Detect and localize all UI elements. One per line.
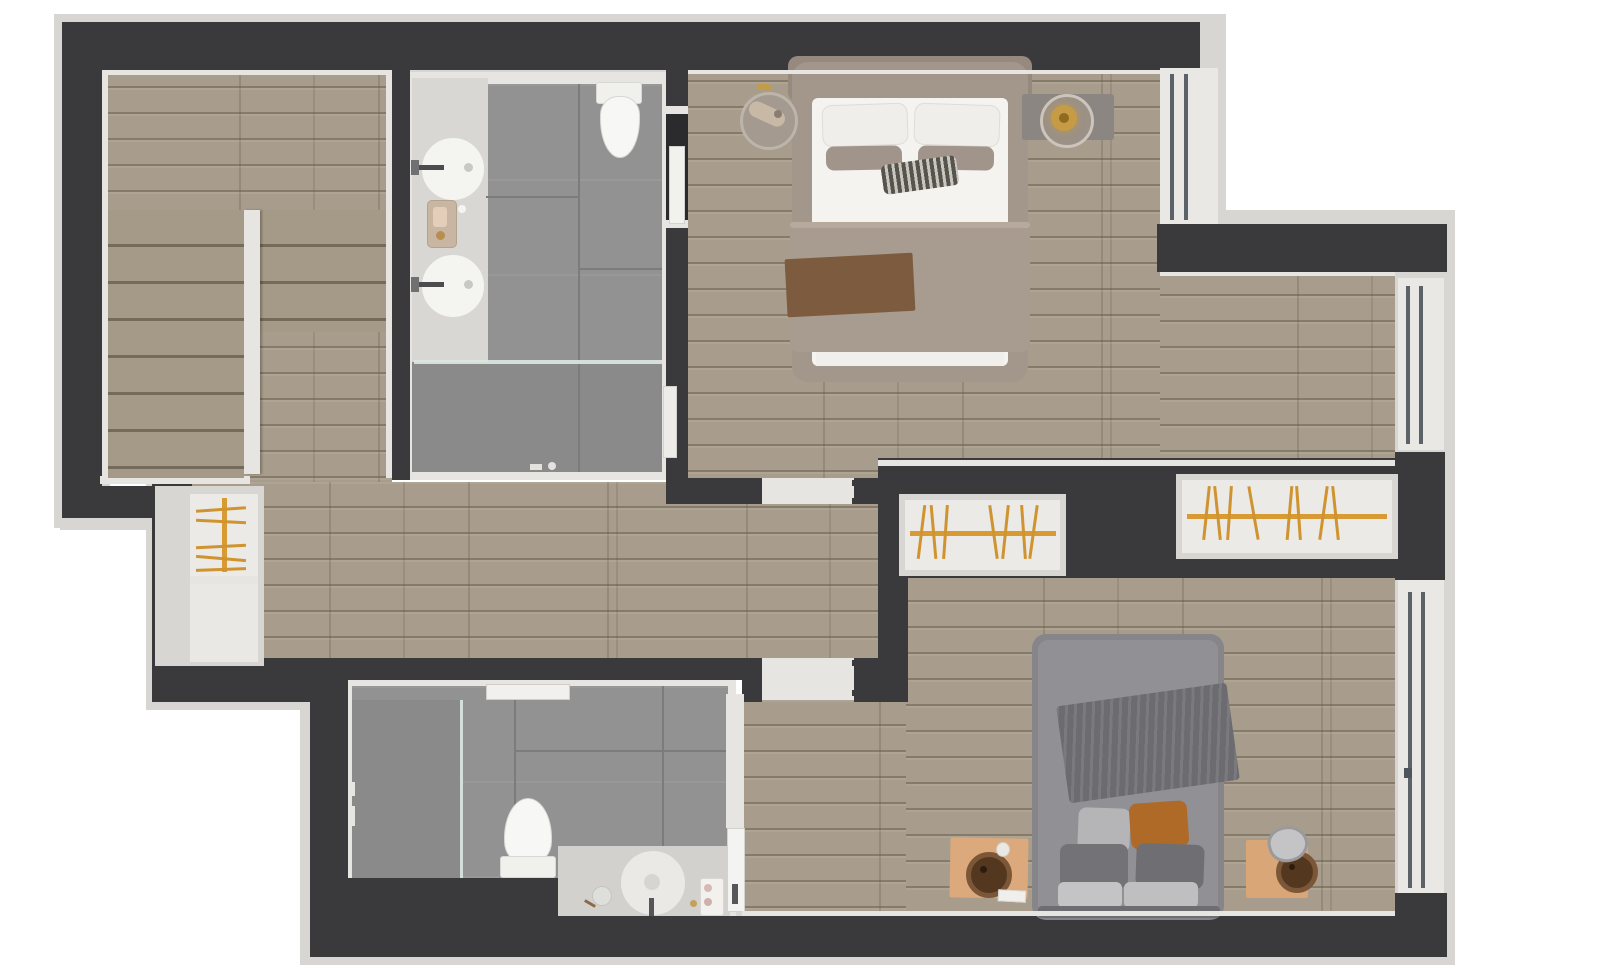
door-jamb-mark (852, 690, 860, 696)
shower-fixture (349, 806, 355, 826)
closet-zone-top-trim (878, 460, 1395, 466)
gold-accessory (690, 900, 697, 907)
bed2-pillow-bottom-right (1124, 882, 1198, 908)
wall-right-mid-block (1395, 452, 1445, 580)
bathroom1-door-leaf (669, 146, 685, 224)
bedroom2-inner-trim-bottom (742, 911, 1395, 916)
hall-closet-divider (190, 576, 258, 584)
sink-drain (464, 163, 473, 172)
pillow-white-left (821, 103, 908, 148)
window-glazing (1419, 286, 1423, 444)
window-glazing (1406, 286, 1410, 444)
soap-item (704, 884, 712, 892)
towel-rail (663, 386, 677, 458)
wall-hall-bottom-b (348, 658, 742, 680)
basket-center (980, 866, 987, 873)
bed2-pillow-bottom-left (1058, 882, 1122, 908)
wall-hall-bottom-d (854, 658, 908, 702)
door-jamb-mark (852, 660, 860, 666)
cosmetic-bottle (436, 231, 445, 240)
floor-dressing-area (1160, 270, 1395, 460)
floor-plan-canvas (0, 0, 1600, 970)
staircase-trim-top (102, 70, 392, 75)
door-jamb-mark (754, 660, 762, 666)
floor-hallway (192, 482, 878, 660)
window-glazing (1184, 74, 1188, 220)
dressing-inner-trim-top (1160, 272, 1395, 276)
door-jamb-mark (852, 480, 860, 486)
bathroom1-shower-floor (412, 362, 662, 472)
threshold-master-bedroom-door (762, 478, 854, 504)
pocket-door-handle (732, 884, 738, 904)
stair-center-divider (244, 210, 260, 474)
vanity-tray (700, 878, 724, 916)
shower-fixture (349, 782, 355, 796)
window-glazing (1170, 74, 1174, 220)
wall-shelf (486, 684, 570, 700)
table-lamp-finial (1059, 113, 1069, 123)
tile-joint (662, 686, 664, 846)
mattress-foot-strip (816, 352, 1004, 366)
hand-mirror (592, 886, 612, 906)
stair-flight-right (260, 210, 386, 332)
tile-joint (514, 750, 730, 752)
door-jamb-mark (754, 690, 762, 696)
candle (458, 205, 466, 213)
wall-hall-top-a (688, 478, 762, 504)
tile-joint (486, 196, 578, 198)
bed2-pillow-cognac (1128, 800, 1189, 850)
shower-control (530, 464, 542, 470)
faucet-base (411, 160, 419, 175)
shower-glass-partition (414, 360, 662, 364)
door-jamb-mark (754, 480, 762, 486)
bathroom2-shower-floor (352, 700, 462, 878)
threshold-bedroom2-door (762, 658, 854, 700)
bathroom1-door-jamb (666, 106, 688, 114)
door-jamb-mark (754, 498, 762, 504)
tile-joint (578, 268, 662, 270)
shower-control (548, 462, 556, 470)
sink-drain (464, 280, 473, 289)
window-glazing (1408, 592, 1412, 888)
staircase-trim-right (386, 70, 392, 478)
basin-drain (644, 874, 660, 890)
wall-bottom (310, 916, 1447, 957)
window-master-bedroom (1160, 68, 1218, 224)
window-glazing (1421, 592, 1425, 888)
floor-bedroom2-west (742, 700, 906, 918)
tray-dish (774, 110, 782, 118)
wall-below-bathroom2 (348, 878, 560, 918)
notepad (998, 889, 1027, 902)
stair-flight-left (108, 210, 244, 478)
basin-faucet (649, 898, 654, 916)
window-handle (1404, 768, 1412, 778)
shower-glass-partition (460, 700, 463, 878)
basket-center (1289, 864, 1295, 870)
wall-left (62, 22, 102, 518)
door-jamb-mark (852, 498, 860, 504)
wall-extension-top (1157, 224, 1447, 272)
master-inner-trim-top (688, 70, 1160, 74)
hall-storage-compartment (190, 584, 258, 662)
faucet-base (411, 277, 419, 292)
wall-bathroom1-right-upper (666, 56, 688, 112)
wall-bathroom1-left (392, 60, 410, 480)
pocket-door-track (726, 694, 744, 828)
tile-joint (578, 84, 580, 472)
cosmetic-bottle (433, 207, 447, 227)
duvet-fold-edge (790, 222, 1030, 228)
pillow-white-right (913, 103, 1000, 148)
wall-right-bottom-block (1395, 893, 1447, 957)
wall-bathroom1-right-lower (666, 225, 688, 504)
wall-left-lower-v (310, 676, 348, 922)
soap-item (704, 898, 712, 906)
throw-runner-brown (785, 253, 916, 318)
small-vase (996, 842, 1010, 857)
toilet-tank (500, 856, 556, 878)
